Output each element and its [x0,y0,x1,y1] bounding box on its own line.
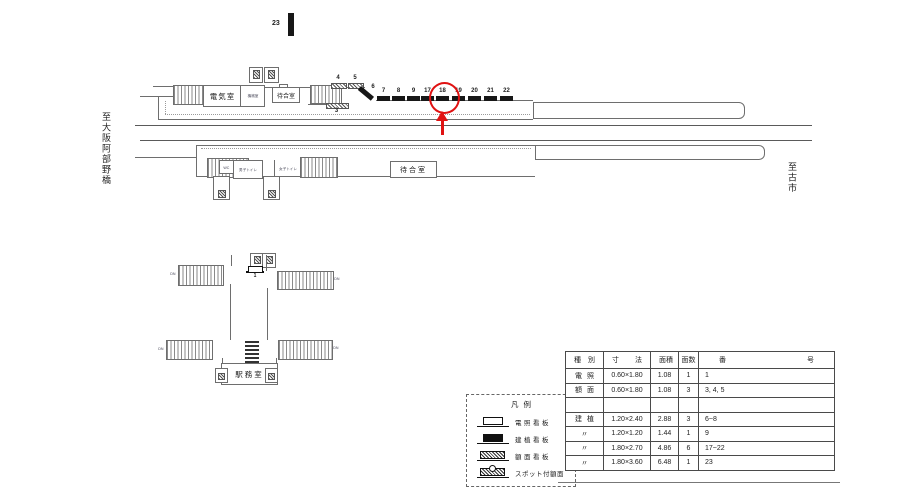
mens-toilet-room: 男子トイレ [233,160,263,179]
sign-23-bar [288,13,294,36]
womens-toilet-label: 女子トイレ [279,166,297,171]
track-line [140,140,812,141]
spec-table-body: 電照0.60×1.801.0811額面0.60×1.801.0833, 4, 5… [566,369,835,471]
gate-box [262,253,276,268]
concourse-stairs [178,265,224,286]
table-cell [566,398,604,413]
legend-title: 凡例 [467,399,575,410]
sign-label-22: 22 [500,88,513,95]
gate-mark-icon [268,70,275,79]
table-cell: 6 [679,441,699,456]
table-cell: 23 [699,456,835,471]
legend-rows: 電照看板建植看板額面看板スポット付額面 [467,413,575,481]
gate-mark-icon [253,70,260,79]
table-cell: 6~8 [699,412,835,427]
sign-bar-8 [392,96,405,101]
table-cell [679,398,699,413]
table-cell [699,398,835,413]
annex-mark-icon [218,373,225,380]
spec-col-header: 面積 [651,352,679,369]
dn-label: DN [334,276,339,281]
table-cell: 〃 [566,427,604,442]
platform-edge [158,96,159,120]
annex-mark-icon [268,373,275,380]
spot-circle-icon [489,465,496,472]
electric-room: 電気室 [203,85,242,107]
spec-table-wrap: 種別寸法面積面数番号 電照0.60×1.801.0811額面0.60×1.801… [565,351,835,471]
machine-room: 機械室 [240,85,265,107]
platform-edge [196,145,535,146]
waiting-room-lower-label: 待合室 [400,165,427,175]
spec-col-header: 番号 [699,352,835,369]
wc-room: WC [219,160,234,174]
table-cell: 9 [699,427,835,442]
spec-col-header: 面数 [679,352,699,369]
sign-bar-7 [377,96,390,101]
table-cell: 6.48 [651,456,679,471]
platform-inner-dotted [201,148,531,149]
table-cell: 3 [679,412,699,427]
platform-inner-dotted [165,114,530,115]
table-row: 〃1.80×2.704.86617~22 [566,441,835,456]
dn-label: DN [170,271,175,276]
sign-bar-22 [500,96,513,101]
table-cell: 額面 [566,383,604,398]
sign-label-8: 8 [392,88,405,95]
platform-edge [135,157,196,158]
wall [274,160,275,176]
dn-label: DN [333,345,338,350]
table-cell: 電照 [566,369,604,384]
station-diagram: 23 至大阪阿部野橋 至古市 電気室 機械室 [0,0,919,491]
denshou-symbol-icon [477,416,509,428]
gakumen-symbol-icon [477,450,509,462]
sign-1-symbol [248,266,263,273]
platform-edge [140,96,174,97]
waiting-room-lower: 待合室 [390,161,437,178]
sign-23-marker: 23 [272,12,280,30]
legend-item-kenshoku: 建植看板 [467,430,575,447]
gate-box [264,67,279,83]
legend-item-gakumen: 額面看板 [467,447,575,464]
gate-box [249,67,263,83]
legend-item-spot: スポット付額面 [467,464,575,481]
table-row: 額面0.60×1.801.0833, 4, 5 [566,383,835,398]
table-cell: 2.88 [651,412,679,427]
platform-edge [196,145,197,177]
station-office-label: 駅務室 [235,369,264,380]
platform-annex [263,176,280,200]
spot-symbol-icon [477,467,509,479]
table-cell: 〃 [566,456,604,471]
sign-label-4: 4 [331,75,345,82]
legend-item-label: 建植看板 [515,434,551,444]
legend-item-label: スポット付額面 [515,468,564,478]
corridor-wall [267,288,268,340]
office-annex [265,368,278,383]
sign-label-5: 5 [348,75,362,82]
wc-label: WC [223,165,229,170]
sign-label-21: 21 [484,88,497,95]
gate-mark-icon [266,256,273,264]
table-cell: 1.08 [651,383,679,398]
table-cell: 1.80×2.70 [604,441,651,456]
corridor-wall [266,255,267,271]
spec-col-header: 種別 [566,352,604,369]
table-cell: 1 [679,427,699,442]
electric-room-label: 電気室 [210,91,236,102]
corridor-wall [230,284,231,340]
platform-edge [158,119,533,120]
sign-bar-21 [484,96,497,101]
highlight-arrow-shaft [441,120,444,135]
spec-table-header-row: 種別寸法面積面数番号 [566,352,835,369]
machine-room-label: 機械室 [247,93,258,98]
track-line [135,125,812,126]
gate-mark-icon [254,256,261,264]
mens-toilet-label: 男子トイレ [239,167,257,172]
table-cell: 4.86 [651,441,679,456]
table-cell: 0.60×1.80 [604,369,651,384]
table-cell: 〃 [566,441,604,456]
corridor-wall [231,255,232,266]
legend-item-label: 電照看板 [515,417,551,427]
sheet-frame-line [558,482,840,483]
table-cell: 1 [699,369,835,384]
stairs [173,85,205,105]
legend-item-denshou: 電照看板 [467,413,575,430]
spec-col-header: 寸法 [604,352,651,369]
table-cell: 建植 [566,412,604,427]
platform-annex [213,176,230,200]
legend-item-label: 額面看板 [515,451,551,461]
table-cell: 1.20×1.20 [604,427,651,442]
table-cell: 3 [679,383,699,398]
concourse-stairs [278,340,333,360]
table-cell: 17~22 [699,441,835,456]
sign-bar-9 [407,96,420,101]
sign-bar-4 [331,83,347,89]
table-row: 建植1.20×2.402.8836~8 [566,412,835,427]
table-cell [604,398,651,413]
table-cell: 1.80×3.60 [604,456,651,471]
table-cell: 1.20×2.40 [604,412,651,427]
direction-left-label: 至大阪阿部野橋 [100,112,113,186]
stairs [300,157,338,178]
table-cell: 3, 4, 5 [699,383,835,398]
concourse-stairs [166,340,213,360]
table-cell: 0.60×1.80 [604,383,651,398]
sign-label-20: 20 [468,88,481,95]
platform-edge [153,86,175,87]
table-row: 電照0.60×1.801.0811 [566,369,835,384]
dn-label: DN [158,346,163,351]
sign-23-label: 23 [272,20,280,27]
waiting-room-upper: 待合室 [272,87,300,103]
waiting-room-upper-label: 待合室 [277,91,295,100]
highlight-circle [429,82,460,114]
sign-label-9: 9 [407,88,420,95]
table-cell [651,398,679,413]
table-row [566,398,835,413]
table-cell: 1.44 [651,427,679,442]
table-row: 〃1.80×3.606.48123 [566,456,835,471]
platform-inner-dotted [165,101,166,114]
sign-label-6: 6 [369,84,377,91]
office-annex [215,368,228,383]
legend-box: 凡例 電照看板建植看板額面看板スポット付額面 [466,394,576,487]
kenshoku-symbol-icon [477,433,509,445]
sign-label-7: 7 [377,88,390,95]
table-cell: 1 [679,369,699,384]
sign-label-1: 1 [251,273,259,280]
table-cell: 1.08 [651,369,679,384]
concourse-stairs [277,271,334,290]
center-steps [245,341,259,365]
annex-mark-icon [268,190,276,198]
sign-bar-20 [468,96,481,101]
table-row: 〃1.20×1.201.4419 [566,427,835,442]
annex-mark-icon [218,190,226,198]
platform-strip [533,102,745,119]
platform-strip [535,145,765,160]
spec-table: 種別寸法面積面数番号 電照0.60×1.801.0811額面0.60×1.801… [565,351,835,471]
direction-right-label: 至古市 [786,162,799,194]
sign-label-3: 3 [330,108,343,115]
table-cell: 1 [679,456,699,471]
